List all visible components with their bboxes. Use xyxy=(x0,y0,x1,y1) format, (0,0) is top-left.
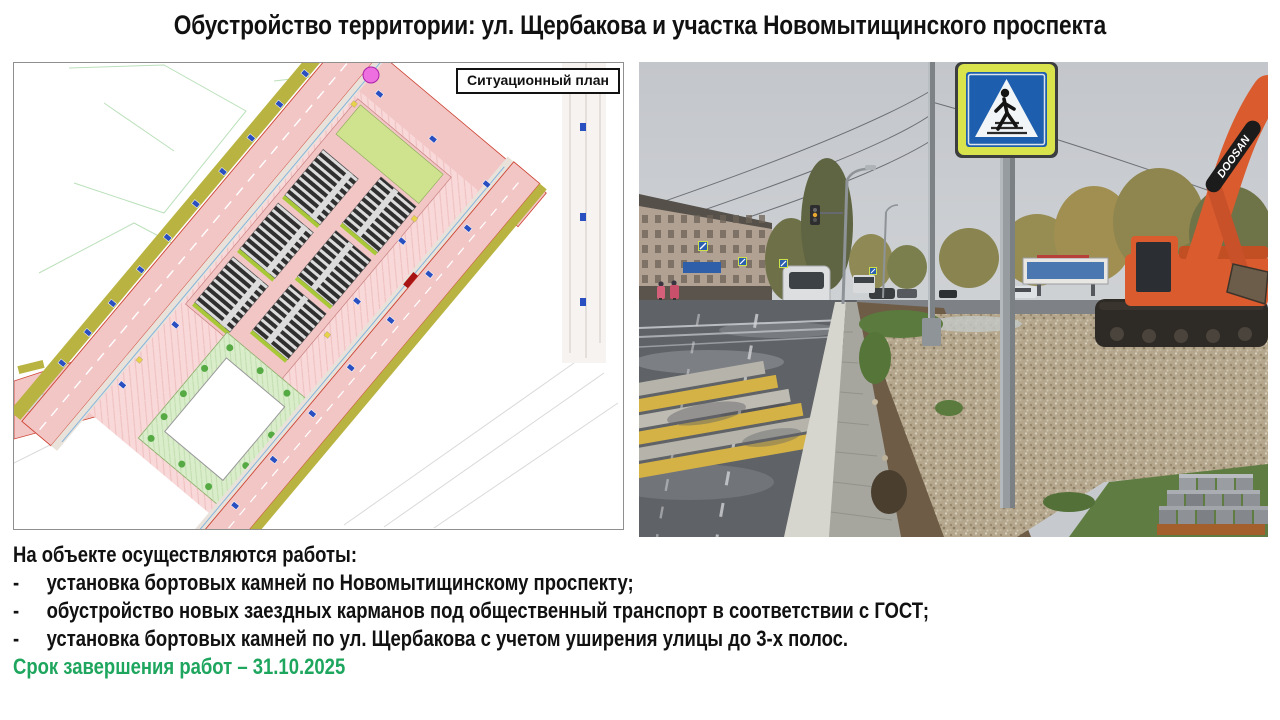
bullet-dash: - xyxy=(13,625,47,653)
site-plan-image: Ситуационный план xyxy=(13,62,624,530)
site-block xyxy=(14,63,548,529)
right-margin-strip xyxy=(562,63,606,363)
construction-photo: DOOSAN xyxy=(639,62,1268,537)
work-item-text: установка бортовых камней по ул. Щербако… xyxy=(47,626,848,651)
utility-circle-mark xyxy=(363,67,379,83)
slide: Обустройство территории: ул. Щербакова и… xyxy=(0,0,1280,720)
work-list-item: -обустройство новых заездных карманов по… xyxy=(13,597,1273,625)
page-title-text: Обустройство территории: ул. Щербакова и… xyxy=(174,10,1106,41)
bullet-dash: - xyxy=(13,569,47,597)
site-plan-drawing xyxy=(14,63,623,529)
completion-deadline: Срок завершения работ – 31.10.2025 xyxy=(13,653,1273,681)
bullet-dash: - xyxy=(13,597,47,625)
page-title: Обустройство территории: ул. Щербакова и… xyxy=(0,10,1280,41)
plan-caption-box: Ситуационный план xyxy=(456,68,620,94)
work-list-item: -установка бортовых камней по ул. Щербак… xyxy=(13,625,1273,653)
work-list-heading: На объекте осуществляются работы: xyxy=(13,541,1273,569)
photo-drawing: DOOSAN xyxy=(639,62,1268,537)
work-item-text: обустройство новых заездных карманов под… xyxy=(47,598,929,623)
pedestrian-crossing-sign-icon xyxy=(955,62,1058,158)
shop-sign xyxy=(683,262,721,273)
work-list-item: -установка бортовых камней по Новомытищи… xyxy=(13,569,1273,597)
plan-caption-text: Ситуационный план xyxy=(467,72,609,88)
crossing-sign-pole xyxy=(1000,150,1015,508)
work-item-text: установка бортовых камней по Новомытищин… xyxy=(47,570,634,595)
work-list: На объекте осуществляются работы: -устан… xyxy=(13,541,1273,681)
